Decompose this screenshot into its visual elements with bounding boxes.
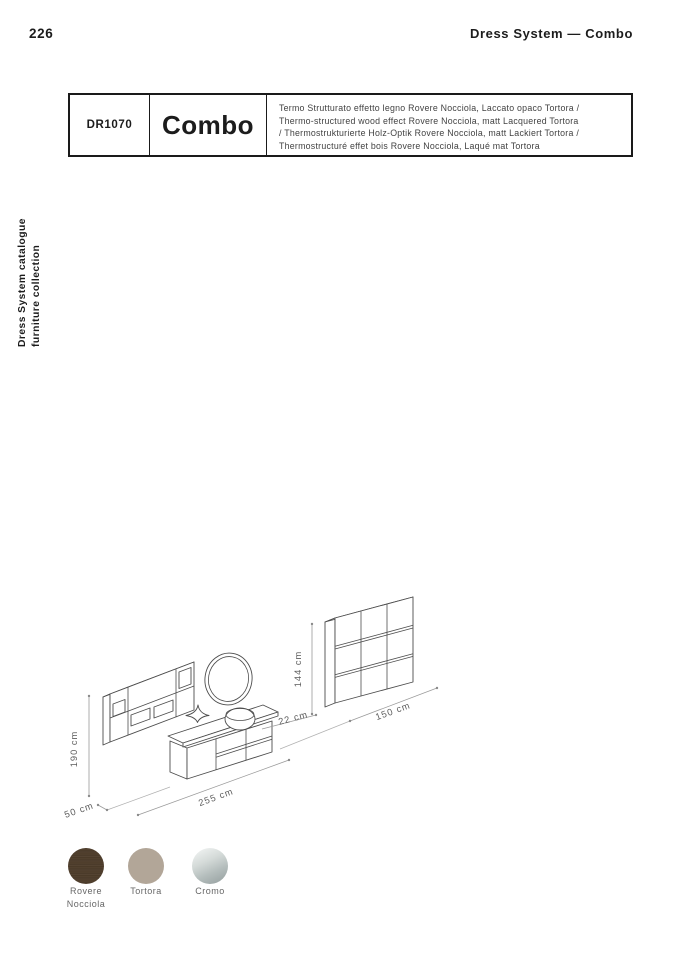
sidebar-caption-line2: furniture collection [30, 213, 44, 347]
swatch-label-tortora: Tortora [117, 885, 175, 898]
dim-label-255: 255 cm [197, 786, 235, 808]
dimension-144: 144 cm [293, 623, 313, 715]
catalogue-page: { "page": { "number": "226", "header_rig… [0, 0, 677, 958]
vanity-unit [168, 705, 278, 779]
product-code: DR1070 [70, 95, 150, 155]
swatch-label-cromo: Cromo [181, 885, 239, 898]
vessel-basin [225, 708, 255, 730]
description-line: / Thermostrukturierte Holz-Optik Rovere … [279, 127, 621, 140]
description-line: Thermo-structured wood effect Rovere Noc… [279, 115, 621, 128]
page-header-title: Dress System — Combo [470, 26, 633, 41]
storage-cabinet [325, 597, 413, 707]
page-number: 226 [29, 26, 53, 41]
product-name: Combo [150, 95, 267, 155]
sidebar-caption-line1: Dress System catalogue [16, 213, 30, 347]
mirror [201, 649, 256, 708]
description-line: Thermostructuré effet bois Rovere Noccio… [279, 140, 621, 153]
dim-label-190: 190 cm [69, 731, 79, 768]
swatch-cromo [192, 848, 228, 884]
product-spec-table: DR1070 Combo Termo Strutturato effetto l… [68, 93, 633, 157]
swatch-rovere-nocciola [68, 848, 104, 884]
sidebar-vertical-caption: Dress System catalogue furniture collect… [16, 213, 43, 347]
technical-drawing: 190 cm 50 cm 255 cm 22 cm 144 cm 150 cm [55, 585, 465, 830]
dimension-50: 50 cm [63, 800, 108, 819]
swatch-label-rovere-nocciola: Rovere Nocciola [57, 885, 115, 910]
dim-label-144: 144 cm [293, 651, 303, 688]
dimension-190: 190 cm [69, 695, 90, 797]
dim-label-50: 50 cm [63, 800, 95, 819]
dim-label-22: 22 cm [277, 709, 309, 727]
product-description: Termo Strutturato effetto legno Rovere N… [267, 95, 631, 155]
swatch-tortora [128, 848, 164, 884]
dim-label-150: 150 cm [374, 700, 412, 722]
description-line: Termo Strutturato effetto legno Rovere N… [279, 102, 621, 115]
